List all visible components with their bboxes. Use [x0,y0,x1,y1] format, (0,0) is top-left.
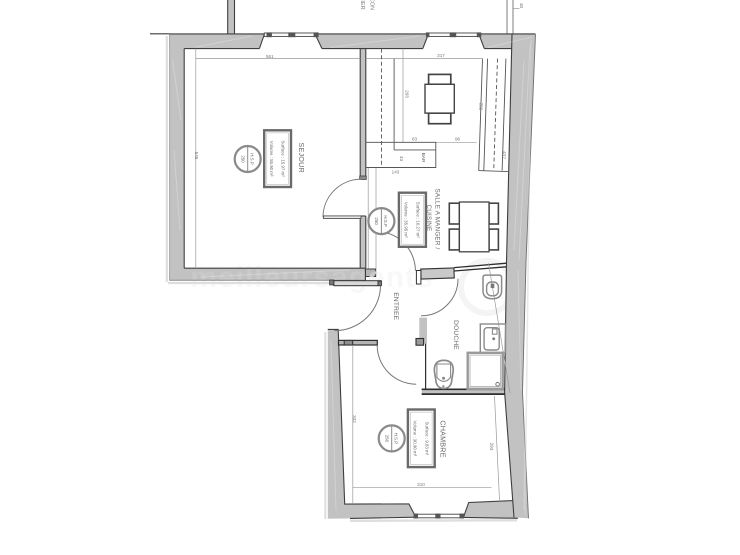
svg-text:H.S.P: H.S.P [383,215,388,227]
svg-text:ENTREE: ENTREE [392,292,399,320]
svg-text:561: 561 [266,54,274,59]
svg-text:SEJOUR: SEJOUR [297,143,306,173]
svg-text:IER: IER [359,0,365,9]
svg-text:CUISINE: CUISINE [425,205,432,232]
svg-text:Surface : 10.27 m²: Surface : 10.27 m² [415,202,420,239]
svg-text:meilleursagents: meilleursagents [190,261,433,294]
svg-text:310: 310 [417,482,425,487]
svg-text:43: 43 [399,156,404,162]
svg-text:Volume : 30.90 m³: Volume : 30.90 m³ [413,420,418,456]
svg-text:Volume : 35.95 m³: Volume : 35.95 m³ [404,202,409,238]
svg-text:H.S.P: H.S.P [394,433,399,445]
svg-text:30: 30 [519,3,524,9]
svg-text:252: 252 [478,103,483,111]
svg-text:96: 96 [455,137,461,142]
svg-text:250: 250 [374,217,379,225]
svg-text:CHAMBRE: CHAMBRE [438,420,447,457]
svg-text:143: 143 [392,170,400,175]
svg-text:250: 250 [241,155,246,163]
svg-text:DOUCHE: DOUCHE [452,320,459,350]
svg-text:Surface : 9.83 m²: Surface : 9.83 m² [424,421,429,455]
svg-text:332: 332 [352,415,357,423]
svg-text:293: 293 [489,443,494,451]
svg-text:BAR: BAR [420,153,426,163]
svg-text:83: 83 [412,137,418,142]
svg-text:545: 545 [194,152,199,160]
svg-text:Volume : 55.90 m³: Volume : 55.90 m³ [269,141,274,177]
svg-text:CON: CON [368,0,374,10]
svg-text:203: 203 [404,90,409,98]
svg-text:437: 437 [501,151,506,159]
svg-text:Surface : 15.97 m²: Surface : 15.97 m² [281,141,286,178]
svg-text:SALLE A MANGER /: SALLE A MANGER / [434,189,441,250]
svg-text:H.S.P: H.S.P [250,153,255,165]
svg-text:250: 250 [385,435,390,443]
svg-text:317: 317 [437,53,445,58]
